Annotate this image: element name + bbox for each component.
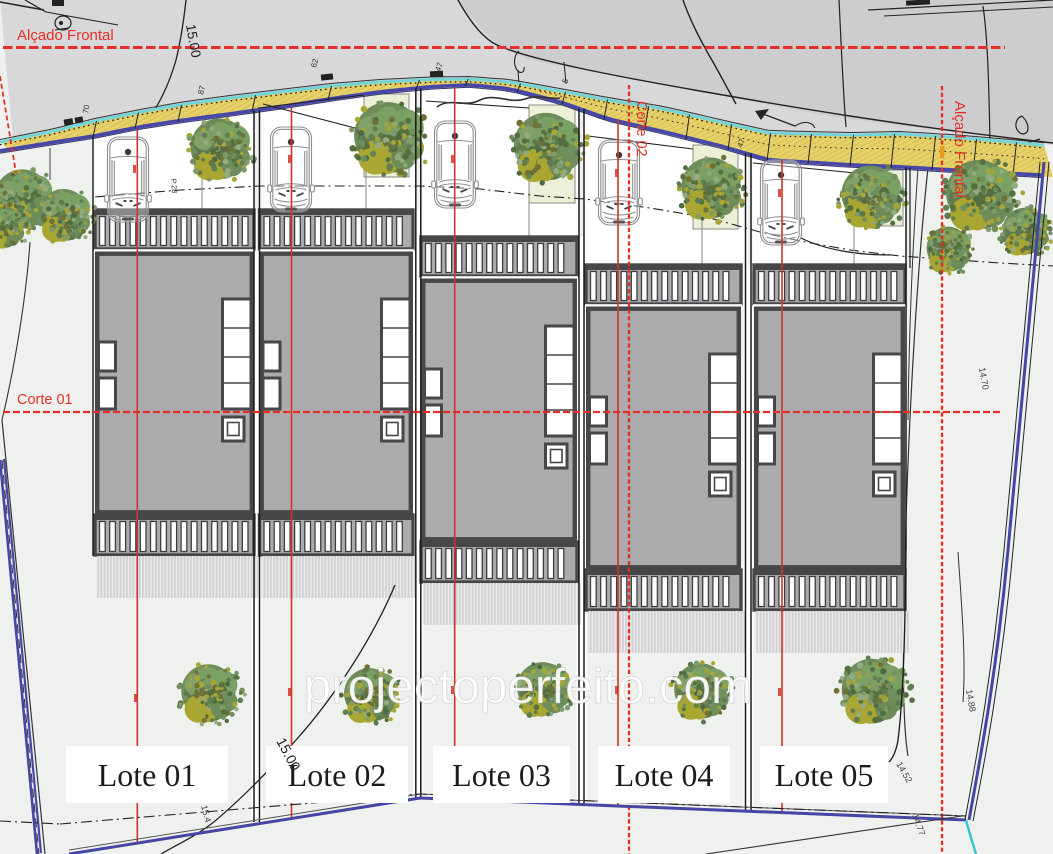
svg-text:Lote 05: Lote 05 [775,757,874,793]
svg-text:Corte 01: Corte 01 [17,392,73,408]
svg-text:Alçado Frontal: Alçado Frontal [17,27,114,44]
svg-text:Lote 01: Lote 01 [98,757,197,793]
svg-text:Alçado Frontal: Alçado Frontal [951,101,968,198]
svg-text:projectoperfeito.com: projectoperfeito.com [304,659,752,714]
svg-text:P.28: P.28 [169,178,179,193]
svg-text:Lote 03: Lote 03 [452,757,551,793]
svg-text:Corte 02: Corte 02 [633,101,649,157]
svg-text:Lote 04: Lote 04 [615,757,714,793]
